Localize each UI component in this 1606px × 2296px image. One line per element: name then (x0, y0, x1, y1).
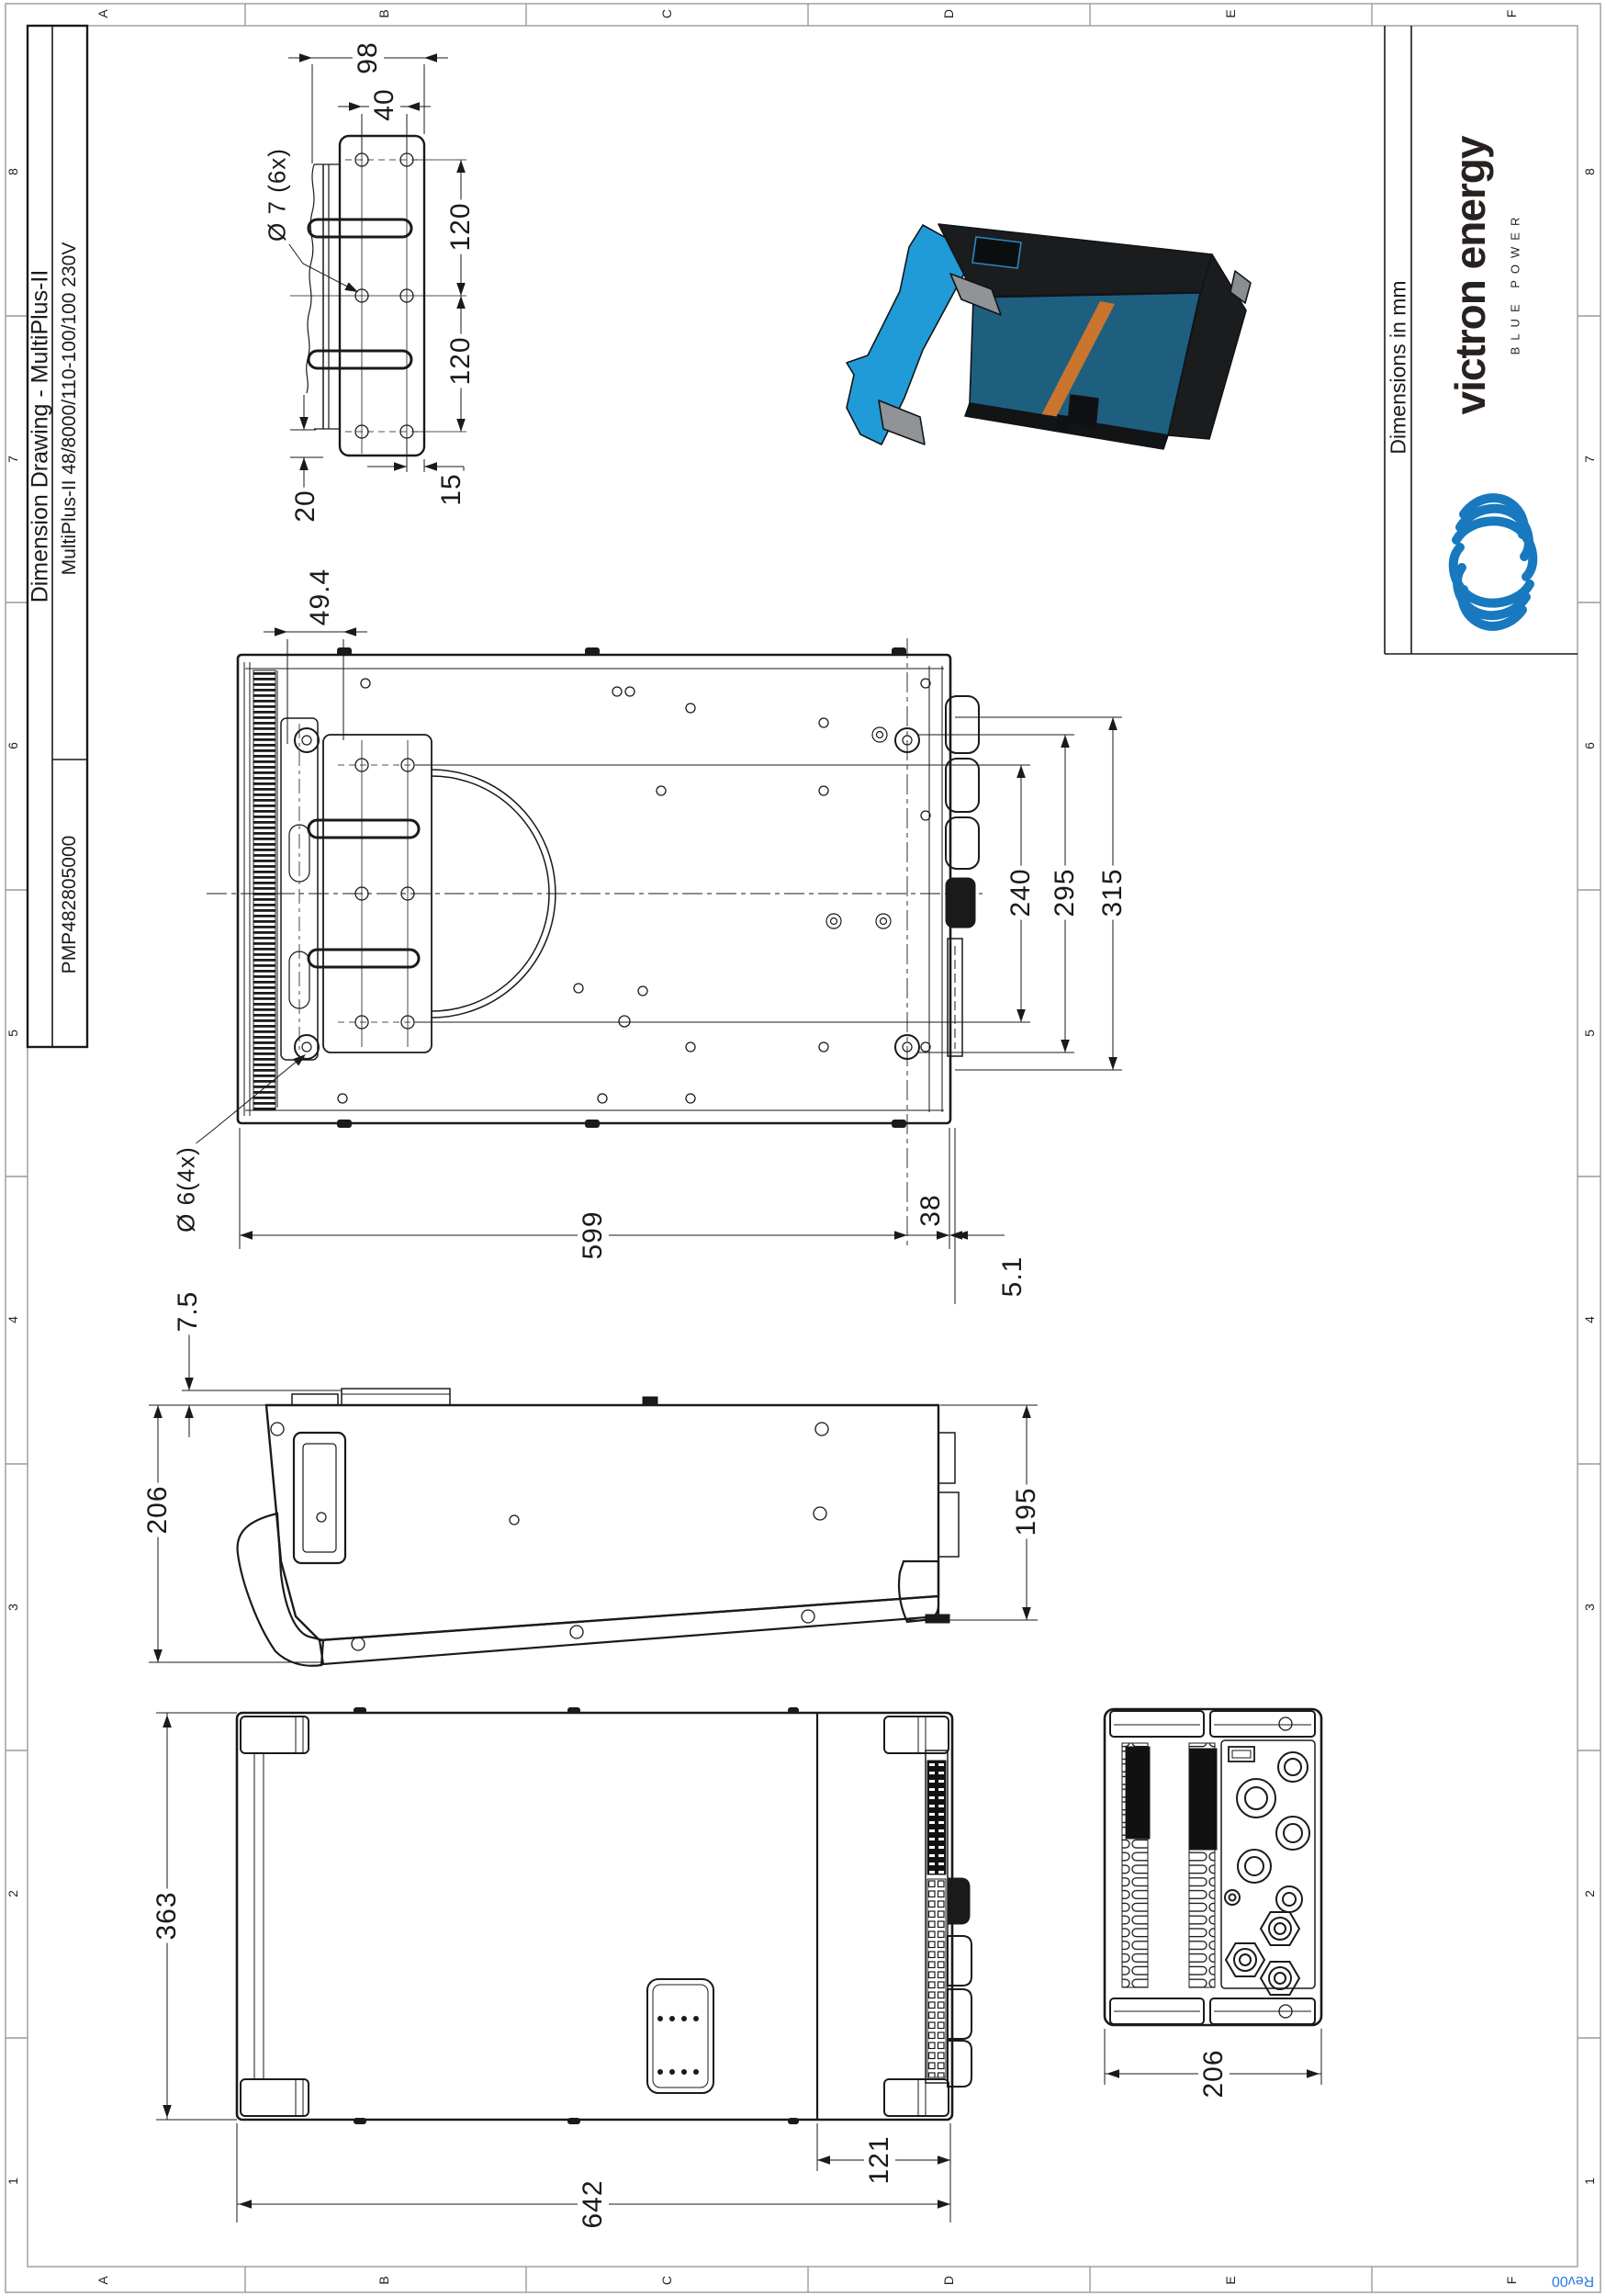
connection-view (1105, 1709, 1321, 2085)
grid-number-right: 6 (1582, 742, 1597, 749)
dim-connection-depth: 206 (1198, 2046, 1230, 2100)
dim-bracket-hole-pitch-x: 40 (369, 85, 400, 123)
grid-letter-bottom: E (1223, 2276, 1238, 2284)
dim-front-height: 363 (152, 1888, 183, 1942)
dim-side-body-depth: 195 (1011, 1484, 1042, 1538)
grid-number-left: 2 (6, 1890, 20, 1897)
grid-letter-top: A (95, 9, 110, 17)
grid-number-left: 6 (6, 742, 20, 749)
dim-side-overall-depth: 206 (142, 1482, 174, 1536)
grid-number-left: 7 (6, 456, 20, 463)
grid-number-right: 1 (1582, 2178, 1597, 2185)
grid-letter-top: B (376, 9, 391, 17)
grid-letter-bottom: B (376, 2276, 391, 2284)
grid-number-right: 7 (1582, 456, 1597, 463)
dim-rear-body-width: 599 (578, 1208, 609, 1262)
grid-number-right: 5 (1582, 1030, 1597, 1037)
dim-side-wall-gap: 7.5 (173, 1289, 204, 1335)
dim-rear-overall-height: 315 (1097, 865, 1129, 919)
grid-number-left: 1 (6, 2178, 20, 2185)
dim-bracket-width: 98 (353, 39, 384, 76)
grid-number-right: 8 (1582, 168, 1597, 175)
grid-number-left: 5 (6, 1030, 20, 1037)
grid-number-right: 4 (1582, 1316, 1597, 1323)
side-view (149, 1330, 1038, 1666)
grid-number-left: 4 (6, 1316, 20, 1323)
brand-wordmark: victron energy (1445, 137, 1495, 415)
grid-letter-bottom: D (941, 2276, 956, 2285)
model-designation: MultiPlus-II 48/8000/110-100/100 230V (59, 242, 81, 576)
grid-number-left: 8 (6, 168, 20, 175)
grid-letter-top: C (659, 9, 674, 18)
units-note: Dimensions in mm (1387, 280, 1411, 454)
dim-rear-bracket-offset: 49.4 (305, 566, 336, 628)
brand-tagline: BLUE POWER (1509, 211, 1522, 355)
dim-bracket-hole-pitch-y1: 120 (445, 199, 477, 253)
part-number: PMP482805000 (59, 836, 81, 974)
dim-rear-hole-span: 240 (1005, 865, 1037, 919)
sheet-border (6, 4, 1600, 2292)
grid-number-right: 3 (1582, 1604, 1597, 1611)
dim-rear-foot-hole-callout: Ø 6(4x) (173, 1143, 201, 1235)
grid-letter-top: D (941, 9, 956, 18)
drawing-linework (0, 0, 1606, 2296)
dim-bracket-side-offset: 15 (436, 470, 467, 508)
front-view (156, 1707, 971, 2223)
dim-rear-end-cap: 38 (915, 1191, 947, 1229)
revision-label: Rev00 (1552, 2272, 1594, 2289)
drawing-sheet: A B C D E F A B C D E F 8 7 6 5 4 3 2 1 … (0, 0, 1606, 2296)
grid-letter-bottom: A (95, 2276, 110, 2284)
grid-letter-bottom: C (659, 2276, 674, 2285)
grid-letter-top: F (1504, 10, 1519, 18)
victron-logo-icon (1442, 479, 1544, 645)
dim-front-connection-zone: 121 (864, 2133, 895, 2187)
dim-bracket-hole-pitch-y2: 120 (445, 333, 477, 388)
dim-bracket-bottom-offset: 20 (290, 487, 321, 524)
dim-front-width: 642 (578, 2177, 609, 2231)
grid-letter-bottom: F (1504, 2277, 1519, 2285)
grid-number-left: 3 (6, 1604, 20, 1611)
grid-letter-top: E (1223, 9, 1238, 17)
grid-number-right: 2 (1582, 1890, 1597, 1897)
rear-view (190, 627, 1122, 1304)
dim-rear-inner-height: 295 (1050, 865, 1081, 919)
drawing-title: Dimension Drawing - MultiPlus-II (28, 270, 54, 603)
dim-rear-flange-gap: 5.1 (997, 1254, 1028, 1300)
dim-bracket-hole-callout: Ø 7 (6x) (264, 145, 292, 244)
product-isometric-image (847, 224, 1251, 449)
